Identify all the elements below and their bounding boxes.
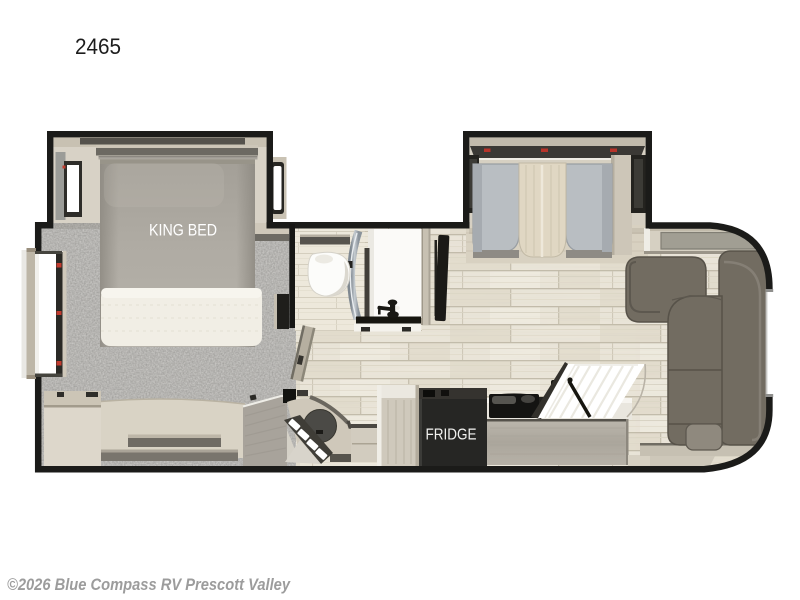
svg-text:KING BED: KING BED: [149, 222, 217, 240]
svg-text:2465: 2465: [75, 34, 121, 59]
svg-text:FRIDGE: FRIDGE: [426, 427, 477, 444]
svg-text:©2026 Blue Compass RV Prescott: ©2026 Blue Compass RV Prescott Valley: [7, 575, 291, 594]
